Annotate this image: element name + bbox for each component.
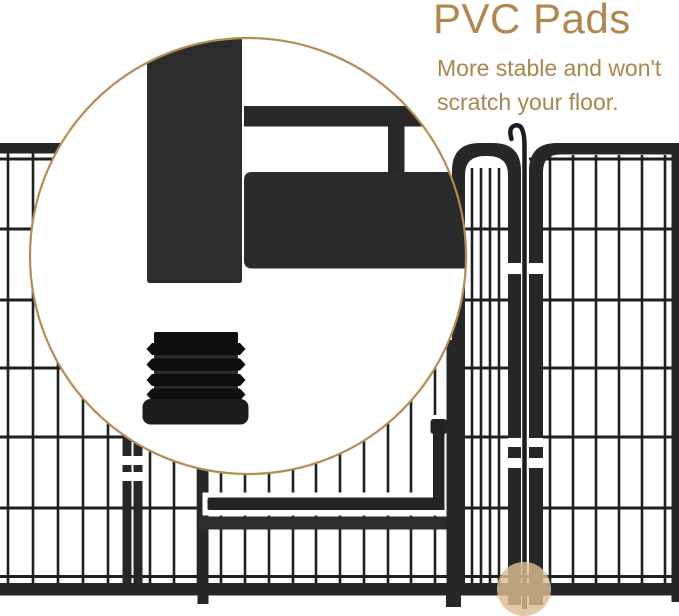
magnified-connector-wire xyxy=(388,106,405,172)
inner-frame-cap xyxy=(431,419,448,434)
foreground-right-post xyxy=(447,340,462,595)
inner-frame-side xyxy=(433,424,445,510)
magnified-leg xyxy=(147,25,242,283)
pvc-pad-cap xyxy=(143,332,249,425)
inner-frame-bottom xyxy=(208,498,445,511)
feature-description-line1: More stable and won't xyxy=(437,51,661,85)
feature-description-line2: scratch your floor. xyxy=(437,85,661,119)
right-panel-right-leg xyxy=(672,154,679,595)
feature-description: More stable and won't scratch your floor… xyxy=(437,51,661,119)
product-image: PVC Pads More stable and won't scratch y… xyxy=(0,0,679,616)
pad-location-highlight xyxy=(497,562,551,616)
feet-stubs xyxy=(198,595,679,609)
bottom-rail xyxy=(0,583,679,596)
foreground-bottom-rail xyxy=(198,517,461,530)
magnified-bottom-rail xyxy=(244,172,472,269)
feature-title: PVC Pads xyxy=(433,0,631,42)
